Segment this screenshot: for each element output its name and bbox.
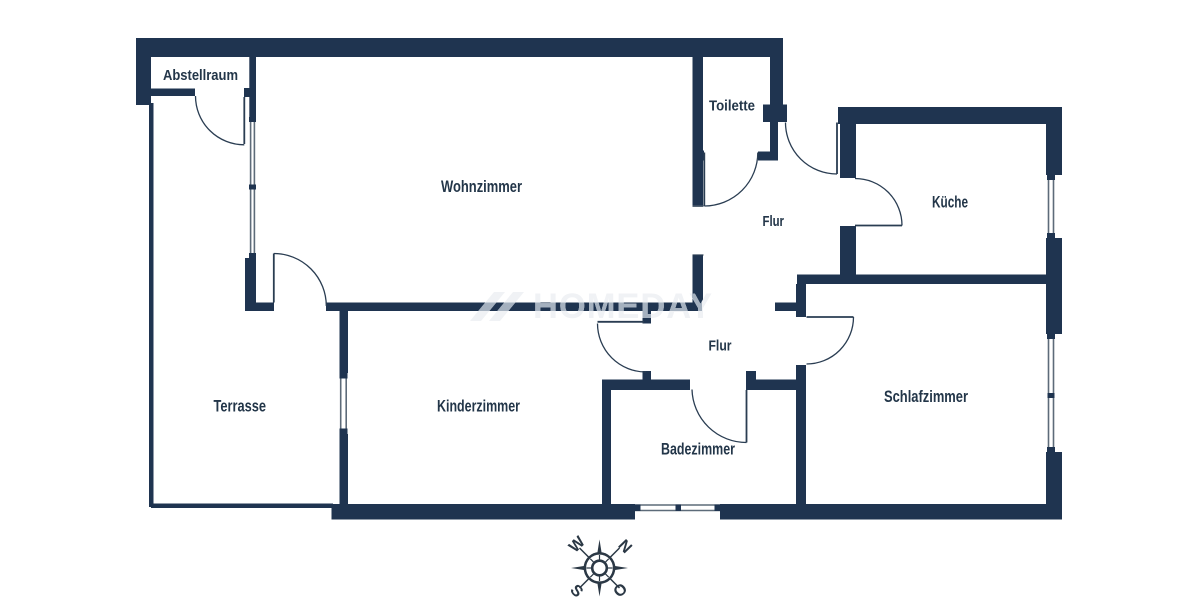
svg-text:Wohnzimmer: Wohnzimmer xyxy=(441,178,522,196)
svg-text:Schlafzimmer: Schlafzimmer xyxy=(884,388,968,406)
svg-text:Toilette: Toilette xyxy=(709,98,755,115)
svg-text:Abstellraum: Abstellraum xyxy=(163,67,238,84)
svg-text:Kinderzimmer: Kinderzimmer xyxy=(437,398,520,416)
svg-text:Küche: Küche xyxy=(932,194,968,212)
svg-text:Terrasse: Terrasse xyxy=(214,398,267,416)
svg-text:Badezimmer: Badezimmer xyxy=(661,441,735,459)
svg-text:Flur: Flur xyxy=(709,338,732,355)
svg-text:Flur: Flur xyxy=(763,213,785,230)
